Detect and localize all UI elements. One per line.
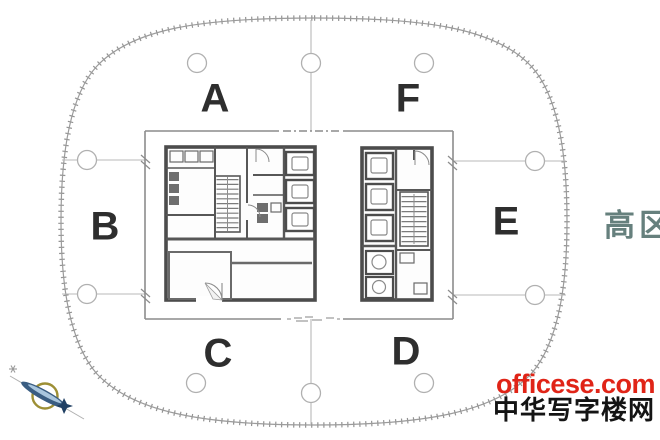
grid-bubble (302, 384, 321, 403)
right-core (362, 148, 432, 300)
zone-label-d: D (392, 330, 421, 375)
watermark-site-url: officese.com (493, 371, 655, 398)
grid-bubble (78, 285, 97, 304)
grid-bubble (415, 54, 434, 73)
grid-bubble (526, 286, 545, 305)
grid-bubble (188, 54, 207, 73)
frame-dimension-marks (287, 317, 340, 321)
compass-north-icon (9, 366, 84, 420)
watermark-site-name: 中华写字楼网 (493, 398, 655, 425)
grid-bubble (302, 54, 321, 73)
grid-bubble (526, 152, 545, 171)
zone-label-e: E (493, 200, 520, 245)
elevator-bank-right (366, 153, 393, 241)
watermark: officese.com 中华写字楼网 (493, 371, 655, 425)
zone-label-c: C (204, 332, 233, 377)
compass-asterisk (9, 366, 17, 373)
grid-bubble (415, 374, 434, 393)
zone-label-a: A (201, 77, 230, 122)
elevator-bank-left (286, 152, 314, 231)
left-core (166, 147, 315, 304)
zone-label-b: B (91, 205, 120, 250)
grid-bubble (78, 151, 97, 170)
floorplan-page: A B C D E F 高区 officese.com 中华写字楼网 (0, 0, 660, 440)
side-note: 高区 (604, 200, 660, 245)
zone-label-f: F (396, 77, 420, 122)
